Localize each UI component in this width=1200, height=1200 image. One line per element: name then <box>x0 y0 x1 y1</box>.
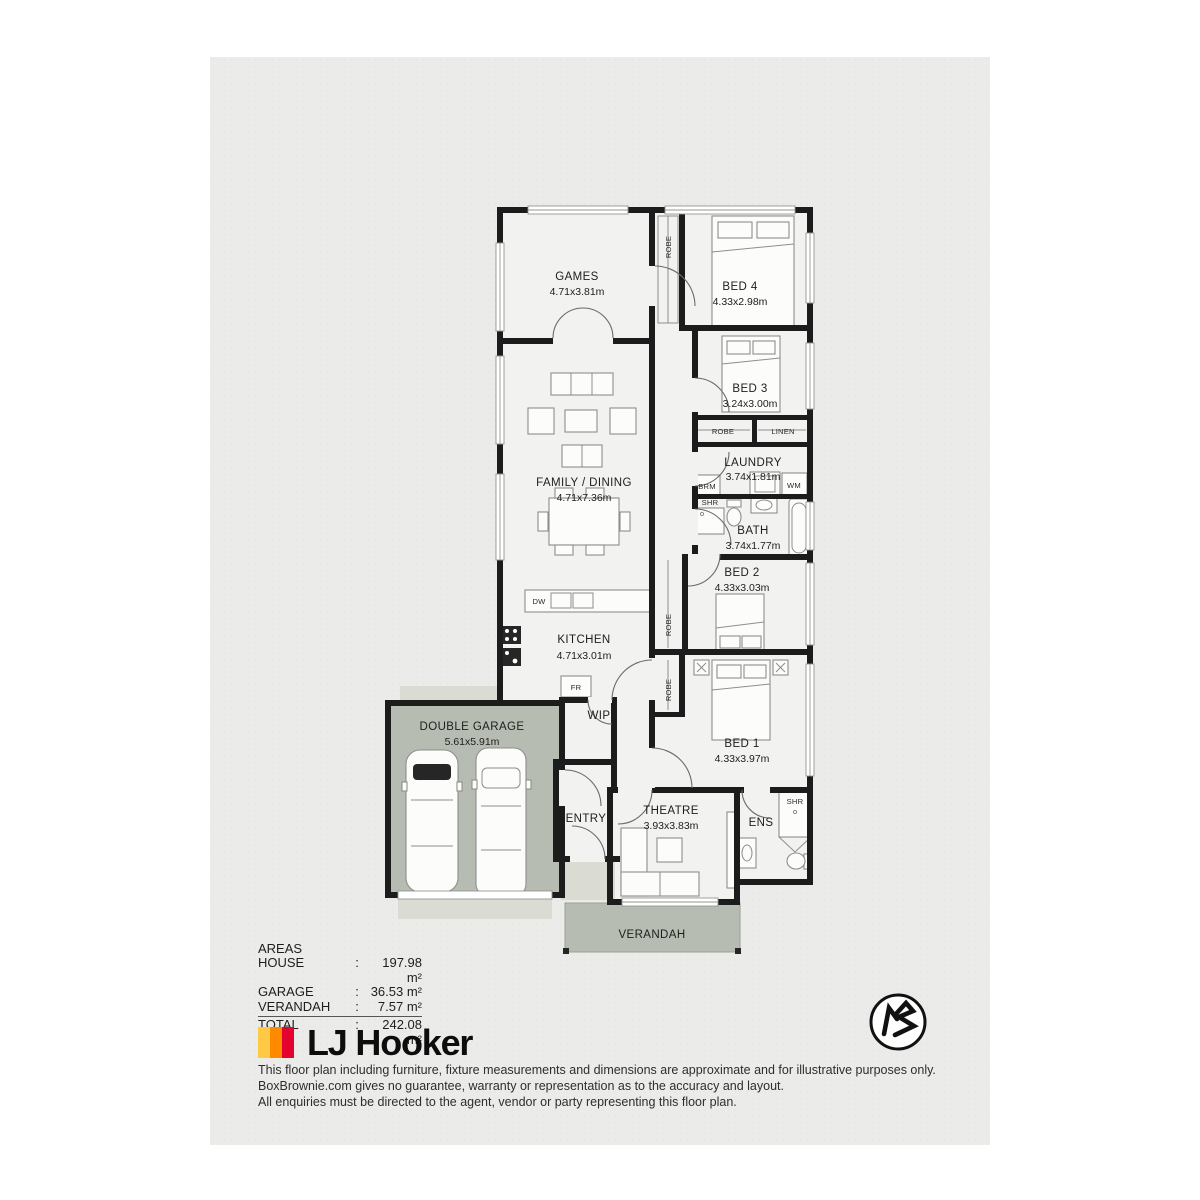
area-value: 7.57 m² <box>364 1000 422 1015</box>
room-label-theatre: THEATRE <box>643 805 699 817</box>
fixture-label-shr-ens: SHR <box>787 797 804 806</box>
room-label-games: GAMES <box>555 271 599 283</box>
disclaimer-line-2: BoxBrownie.com gives no guarantee, warra… <box>258 1079 968 1095</box>
boxbrownie-logo <box>871 995 925 1049</box>
room-dims-bed1: 4.33x3.97m <box>715 753 770 765</box>
bed4-furniture <box>658 216 794 328</box>
area-row-house: HOUSE : 197.98 m² <box>258 956 422 985</box>
room-label-bed4: BED 4 <box>722 281 757 293</box>
floorplan-drawing: GAMES 4.71x3.81m BED 4 4.33x2.98m ROBE B… <box>0 0 1200 1200</box>
room-dims-theatre: 3.93x3.83m <box>644 820 699 832</box>
stripe-orange <box>270 1027 282 1058</box>
room-label-family-dining: FAMILY / DINING <box>536 477 632 489</box>
boxbrownie-circle <box>871 995 925 1049</box>
room-dims-garage: 5.61x5.91m <box>445 736 500 748</box>
area-label: HOUSE <box>258 956 350 985</box>
room-dims-bed3: 3.24x3.00m <box>723 398 778 410</box>
lj-hooker-stripes-icon <box>258 1027 294 1058</box>
garage-door <box>398 891 552 899</box>
room-dims-laundry: 3.74x1.81m <box>726 471 781 483</box>
stripe-red <box>282 1027 294 1058</box>
room-label-garage: DOUBLE GARAGE <box>420 721 525 733</box>
room-dims-bed2: 4.33x3.03m <box>715 582 770 594</box>
room-label-kitchen: KITCHEN <box>557 634 610 646</box>
area-value: 36.53 m² <box>364 985 422 1000</box>
room-label-bed1: BED 1 <box>724 738 759 750</box>
area-separator: : <box>350 1000 364 1015</box>
area-separator: : <box>350 956 364 985</box>
area-label: VERANDAH <box>258 1000 350 1015</box>
verandah-floor <box>565 903 740 952</box>
room-dims-family-dining: 4.71x7.36m <box>557 492 612 504</box>
room-dims-games: 4.71x3.81m <box>550 286 605 298</box>
room-dims-bath: 3.74x1.77m <box>726 540 781 552</box>
fixture-label-robe-bed1: ROBE <box>664 679 673 701</box>
area-row-garage: GARAGE : 36.53 m² <box>258 985 422 1000</box>
room-label-wip: WIP <box>588 710 611 722</box>
area-value: 197.98 m² <box>364 956 422 985</box>
room-label-laundry: LAUNDRY <box>724 457 782 469</box>
agency-name: LJ Hooker <box>307 1025 472 1060</box>
fixture-label-fr: FR <box>571 683 582 692</box>
disclaimer-line-1: This floor plan including furniture, fix… <box>258 1063 968 1079</box>
room-dims-kitchen: 4.71x3.01m <box>557 650 612 662</box>
disclaimer-line-3: All enquiries must be directed to the ag… <box>258 1095 968 1111</box>
fixture-label-brm: BRM <box>698 482 715 491</box>
fixture-label-dw: DW <box>532 597 546 606</box>
lj-hooker-logo: LJ Hooker <box>258 1025 472 1060</box>
stripe-yellow <box>258 1027 270 1058</box>
areas-title: AREAS <box>258 941 422 956</box>
area-row-verandah: VERANDAH : 7.57 m² <box>258 1000 422 1015</box>
fixture-label-robe-bed2: ROBE <box>664 614 673 636</box>
room-label-bed2: BED 2 <box>724 567 759 579</box>
fixture-label-shr-bath: SHR <box>702 498 719 507</box>
fixture-label-robe-hall: ROBE <box>712 427 734 436</box>
room-label-verandah: VERANDAH <box>618 929 685 941</box>
disclaimer-text: This floor plan including furniture, fix… <box>258 1063 968 1110</box>
room-dims-bed4: 4.33x2.98m <box>713 296 768 308</box>
room-label-ens: ENS <box>749 817 774 829</box>
room-label-bed3: BED 3 <box>732 383 767 395</box>
fixture-label-wm: WM <box>787 481 801 490</box>
fixture-label-linen: LINEN <box>771 427 794 436</box>
room-label-bath: BATH <box>737 525 768 537</box>
room-label-entry: ENTRY <box>566 813 607 825</box>
fixture-label-robe-bed4: ROBE <box>664 236 673 258</box>
area-separator: : <box>350 985 364 1000</box>
area-label: GARAGE <box>258 985 350 1000</box>
